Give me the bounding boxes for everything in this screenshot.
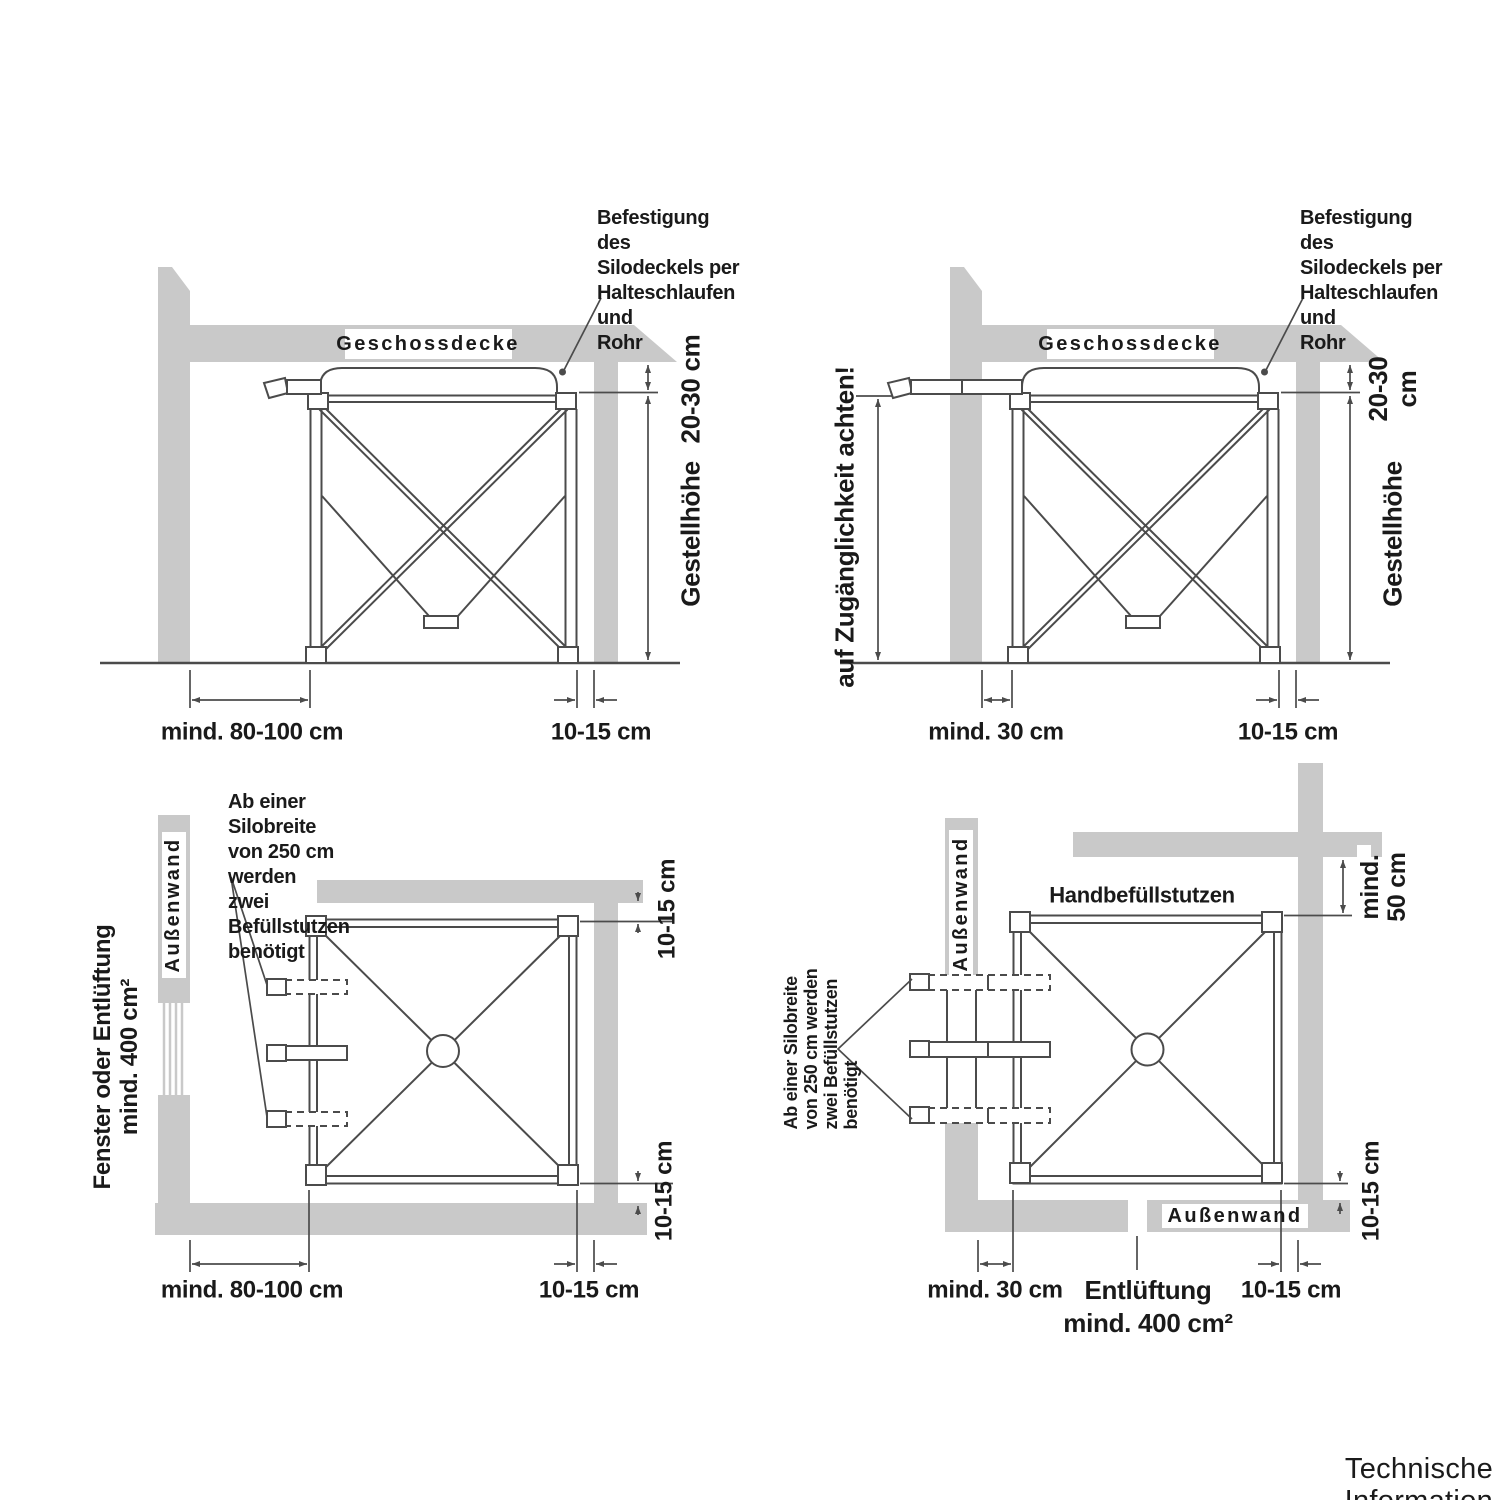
vent-opening [1128,1200,1147,1232]
right-gap-dimension: 10-15 cm [1359,1141,1386,1241]
outer-wall-label-bottom: Außenwand [1168,1205,1303,1227]
lid-fastening-note: Befestigung des Silodeckels per Haltesch… [597,206,747,356]
gap-dimension: 20-30 cm [1364,336,1422,443]
building-structure [100,267,680,663]
gap-dimension: 20-30 cm [676,335,705,444]
fill-pipe-cap [264,378,288,398]
silo-frame [264,368,578,663]
top-view-right [838,763,1382,1272]
top-gap-dimension: 10-15 cm [655,859,682,959]
ceiling-label: Geschossdecke [1038,333,1222,355]
dimension-lines [190,365,658,708]
silo-frame [888,368,1280,663]
fill-pipe [287,380,321,394]
accessibility-note: auf Zugänglichkeit achten! [830,327,859,727]
frame-height-dimension: Gestellhöhe [676,461,705,607]
wall-distance-dimension: mind. 30 cm [927,1278,1062,1305]
lid-fastening-note: Befestigung des Silodeckels per Haltesch… [1300,206,1450,356]
fill-pipe [911,380,1022,394]
diagram-canvas [0,0,1500,1500]
center-outlet [427,1035,459,1067]
silo-width-note: Ab einer Silobreite von 250 cm werden zw… [781,969,861,1130]
ceiling-label: Geschossdecke [336,333,520,355]
building-structure [945,763,1382,1232]
fill-pipes [838,974,1050,1123]
wall-distance-dimension: mind. 30 cm [928,720,1063,747]
top-clearance-dimension: mind. 50 cm [1357,852,1411,921]
outer-wall-label-left: Außenwand [950,837,972,972]
dimension-lines [856,365,1360,708]
window-vent-label: Fenster oder Entlüftung mind. 400 cm² [89,924,143,1189]
outer-wall-label: Außenwand [162,838,184,973]
wall-distance-dimension: mind. 80-100 cm [161,1278,343,1305]
fill-pipe-cap [888,378,912,398]
vent-label: Entlüftung mind. 400 cm² [1063,1274,1233,1340]
side-gap-dimension: 10-15 cm [551,720,651,747]
bottom-gap-dimension: 10-15 cm [652,1141,679,1241]
wall-distance-dimension: mind. 80-100 cm [161,720,343,747]
silo-width-note: Ab einer Silobreite von 250 cm werden zw… [228,790,388,965]
side-gap-dimension: 10-15 cm [1238,720,1338,747]
hand-fill-pipe-label: Handbefüllstutzen [1049,884,1235,909]
side-gap-dimension: 10-15 cm [539,1278,639,1305]
document-title: Technische Information [1245,1453,1493,1500]
technical-info-sheet: Befestigung des Silodeckels per Haltesch… [0,0,1500,1500]
frame-height-dimension: Gestellhöhe [1378,461,1407,607]
center-outlet [1132,1034,1164,1066]
side-gap-dimension: 10-15 cm [1241,1278,1341,1305]
